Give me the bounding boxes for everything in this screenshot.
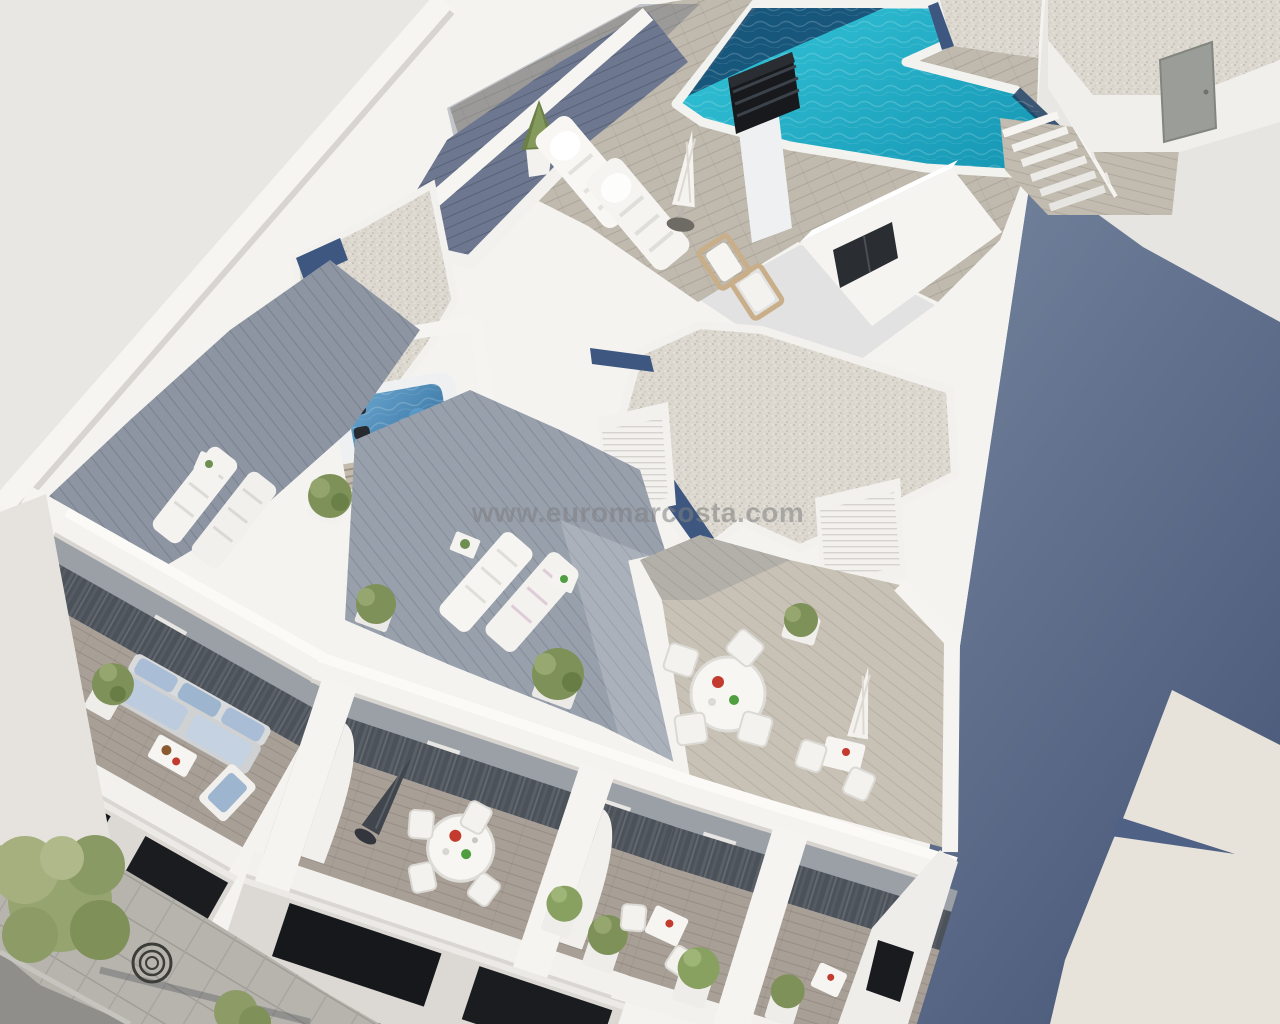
rooftop-render: www.euromarcosta.com — [0, 0, 1280, 1024]
scene-svg: www.euromarcosta.com — [0, 0, 1280, 1024]
watermark-text: www.euromarcosta.com — [471, 497, 805, 528]
door-handle — [1204, 90, 1209, 95]
street-tree — [0, 835, 130, 963]
neighbor-building — [1048, 0, 1280, 152]
